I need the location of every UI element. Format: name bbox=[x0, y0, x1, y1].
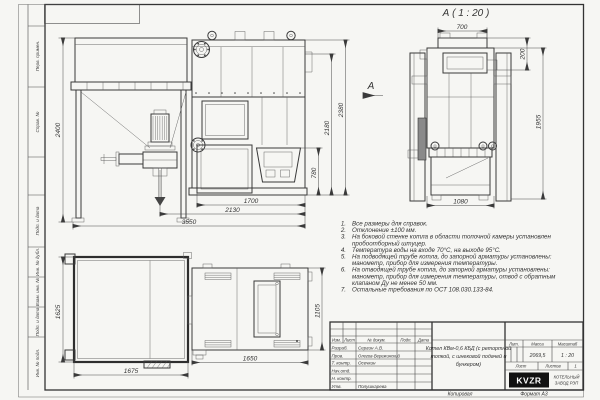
note-number: 7. bbox=[341, 287, 346, 294]
scale-label: Масштаб bbox=[558, 341, 578, 346]
feeder-side bbox=[418, 118, 426, 160]
technical-notes: 1.Все размеры для справок. 2.Отклонение … bbox=[340, 221, 556, 294]
dim-label: 1105 bbox=[315, 304, 322, 318]
tb-name: Сергин А.В. bbox=[358, 345, 383, 350]
gost-drawing: Перв. примен. Справ. № Подп. и дата Инв.… bbox=[0, 0, 600, 400]
sheet-label: Лист bbox=[515, 364, 527, 369]
dim-label: 1700 bbox=[244, 198, 259, 205]
dim-label: 200 bbox=[520, 48, 527, 60]
note-number: 5. bbox=[341, 254, 346, 261]
tb-header-list: Лист bbox=[343, 337, 355, 342]
dim-1675: 1675 bbox=[74, 362, 188, 379]
tb-role: Разраб. bbox=[332, 345, 348, 350]
margin-label: Взам. инв. № bbox=[35, 278, 40, 306]
mass-label: Масса bbox=[531, 341, 544, 346]
company-line: ЗАВОД РЭП bbox=[555, 381, 579, 386]
wheels bbox=[431, 142, 497, 150]
bunker-leg bbox=[76, 90, 81, 218]
margin-label: Инв. № подл. bbox=[35, 349, 40, 378]
tb-name: Олегов-Вережинский bbox=[358, 353, 400, 358]
side-bracket bbox=[305, 52, 312, 72]
fuel-door bbox=[202, 101, 248, 139]
tb-role: Н. контр. bbox=[332, 376, 352, 381]
dim-label: 1955 bbox=[536, 114, 543, 129]
dim-1080: 1080 bbox=[427, 196, 494, 209]
flue-flange bbox=[194, 42, 210, 58]
top-door-plan bbox=[254, 281, 298, 342]
dim-label: 2380 bbox=[338, 102, 345, 118]
sheets-label: Листов bbox=[544, 364, 561, 369]
screw-feeder bbox=[101, 152, 177, 206]
mass-value: 2069,5 bbox=[529, 353, 546, 359]
tb-header-izm: Изм. bbox=[332, 337, 341, 342]
lifting-lugs bbox=[208, 31, 295, 40]
footer-format: Формат А3 bbox=[520, 392, 548, 398]
tb-role: Пров. bbox=[332, 353, 344, 358]
note-number: 3. bbox=[341, 234, 346, 241]
bunker-leg bbox=[181, 90, 186, 218]
dim-1700: 1700 bbox=[197, 193, 305, 229]
dim-1650: 1650 bbox=[192, 350, 308, 366]
footer-copy: Копировал bbox=[448, 392, 473, 398]
boiler-plan bbox=[192, 268, 308, 350]
dim-label: 2400 bbox=[55, 122, 62, 138]
tb-role: Т. контр. bbox=[332, 361, 351, 366]
frame-leg bbox=[496, 53, 511, 201]
doc-title-line: топкой, с шнековой подачей и bbox=[431, 353, 507, 360]
view-direction-arrow: А bbox=[363, 81, 383, 96]
margin-label: Справ. № bbox=[35, 112, 40, 133]
side-view-a: А ( 1 : 20 ) bbox=[408, 8, 547, 209]
margin-label: Подп. и дата bbox=[35, 206, 40, 235]
lit-label: Лит. bbox=[508, 341, 519, 346]
view-a-title: А ( 1 : 20 ) bbox=[442, 8, 490, 19]
dim-label: 1675 bbox=[124, 368, 139, 375]
dim-2400: 2400 bbox=[55, 38, 75, 222]
scale-value: 1 : 20 bbox=[561, 353, 574, 359]
footer-strip: Копировал Формат А3 bbox=[448, 392, 548, 398]
boiler-side-body bbox=[427, 48, 494, 148]
tb-role: Нач.отд. bbox=[332, 368, 351, 373]
margin-label: Перв. примен. bbox=[35, 41, 40, 72]
kvzr-logo-text: KVZR bbox=[516, 376, 541, 386]
dim-label: 780 bbox=[311, 167, 318, 178]
tb-name: Полушкарева bbox=[358, 384, 387, 389]
plan-view: 1625 1675 1650 1105 bbox=[55, 253, 326, 379]
dim-label: 3550 bbox=[182, 219, 197, 226]
doc-title-line: Котел КВм-0,6 КБД (с ретортной bbox=[426, 345, 511, 352]
dim-label: 1650 bbox=[243, 356, 258, 363]
dim-1955: 1955 bbox=[494, 48, 547, 199]
dim-2180: 2180 bbox=[305, 54, 336, 195]
title-block: Изм. Лист № докум. Подп. Дата Разраб. Се… bbox=[330, 322, 583, 390]
note-text: Остальные требования по ОСТ 108.030.133-… bbox=[352, 287, 494, 294]
margin-label: Инв. № дубл. bbox=[35, 248, 40, 276]
vents bbox=[205, 273, 300, 347]
feeder-motor bbox=[145, 110, 175, 150]
tb-role: Утв. bbox=[332, 384, 342, 389]
dim-3550: 3550 bbox=[73, 219, 305, 230]
dim-1105: 1105 bbox=[308, 268, 326, 350]
collar bbox=[438, 38, 487, 48]
dim-700: 700 bbox=[438, 24, 487, 38]
view-arrow-label: А bbox=[367, 81, 375, 92]
tb-header-doc: № докум. bbox=[367, 337, 385, 342]
ash-hopper bbox=[257, 148, 301, 182]
tb-header-sign: Подп. bbox=[400, 337, 411, 342]
top-left-stamp-box bbox=[45, 5, 140, 24]
dim-label: 2180 bbox=[324, 120, 331, 136]
dim-1625: 1625 bbox=[55, 257, 74, 362]
water-box bbox=[443, 53, 487, 73]
dim-780: 780 bbox=[301, 148, 350, 195]
dim-label: 700 bbox=[457, 24, 468, 31]
bunker-plan bbox=[74, 257, 188, 362]
company-line: КОТЕЛЬНЫЙ bbox=[554, 375, 580, 380]
margin-label: Подп. и дата bbox=[35, 307, 40, 336]
ash-door bbox=[197, 145, 252, 193]
dim-label: 1625 bbox=[55, 304, 62, 319]
dim-label: 1080 bbox=[453, 199, 468, 206]
sheets-value: 1 bbox=[574, 364, 576, 369]
ash-box-side bbox=[429, 148, 492, 200]
front-view: 2400 780 2180 2380 1700 2130 bbox=[55, 31, 383, 229]
drawing-sheet: Перв. примен. Справ. № Подп. и дата Инв.… bbox=[0, 0, 600, 400]
tb-name: Осечкин bbox=[358, 361, 376, 366]
doc-title-line: бункером) bbox=[456, 362, 481, 368]
tb-header-date: Дата bbox=[417, 337, 430, 342]
note-number: 6. bbox=[341, 267, 346, 274]
dim-label: 2130 bbox=[224, 207, 240, 214]
